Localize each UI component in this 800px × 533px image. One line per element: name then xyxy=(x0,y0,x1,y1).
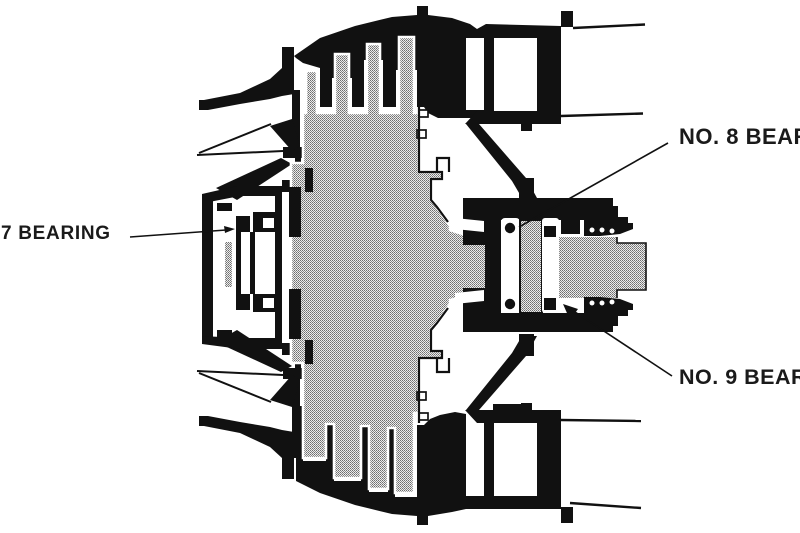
svg-text:NO. 8 BEARING: NO. 8 BEARING xyxy=(679,124,800,149)
svg-text:NO. 9 BEARING: NO. 9 BEARING xyxy=(679,365,800,389)
svg-text:7 BEARING: 7 BEARING xyxy=(1,223,111,244)
